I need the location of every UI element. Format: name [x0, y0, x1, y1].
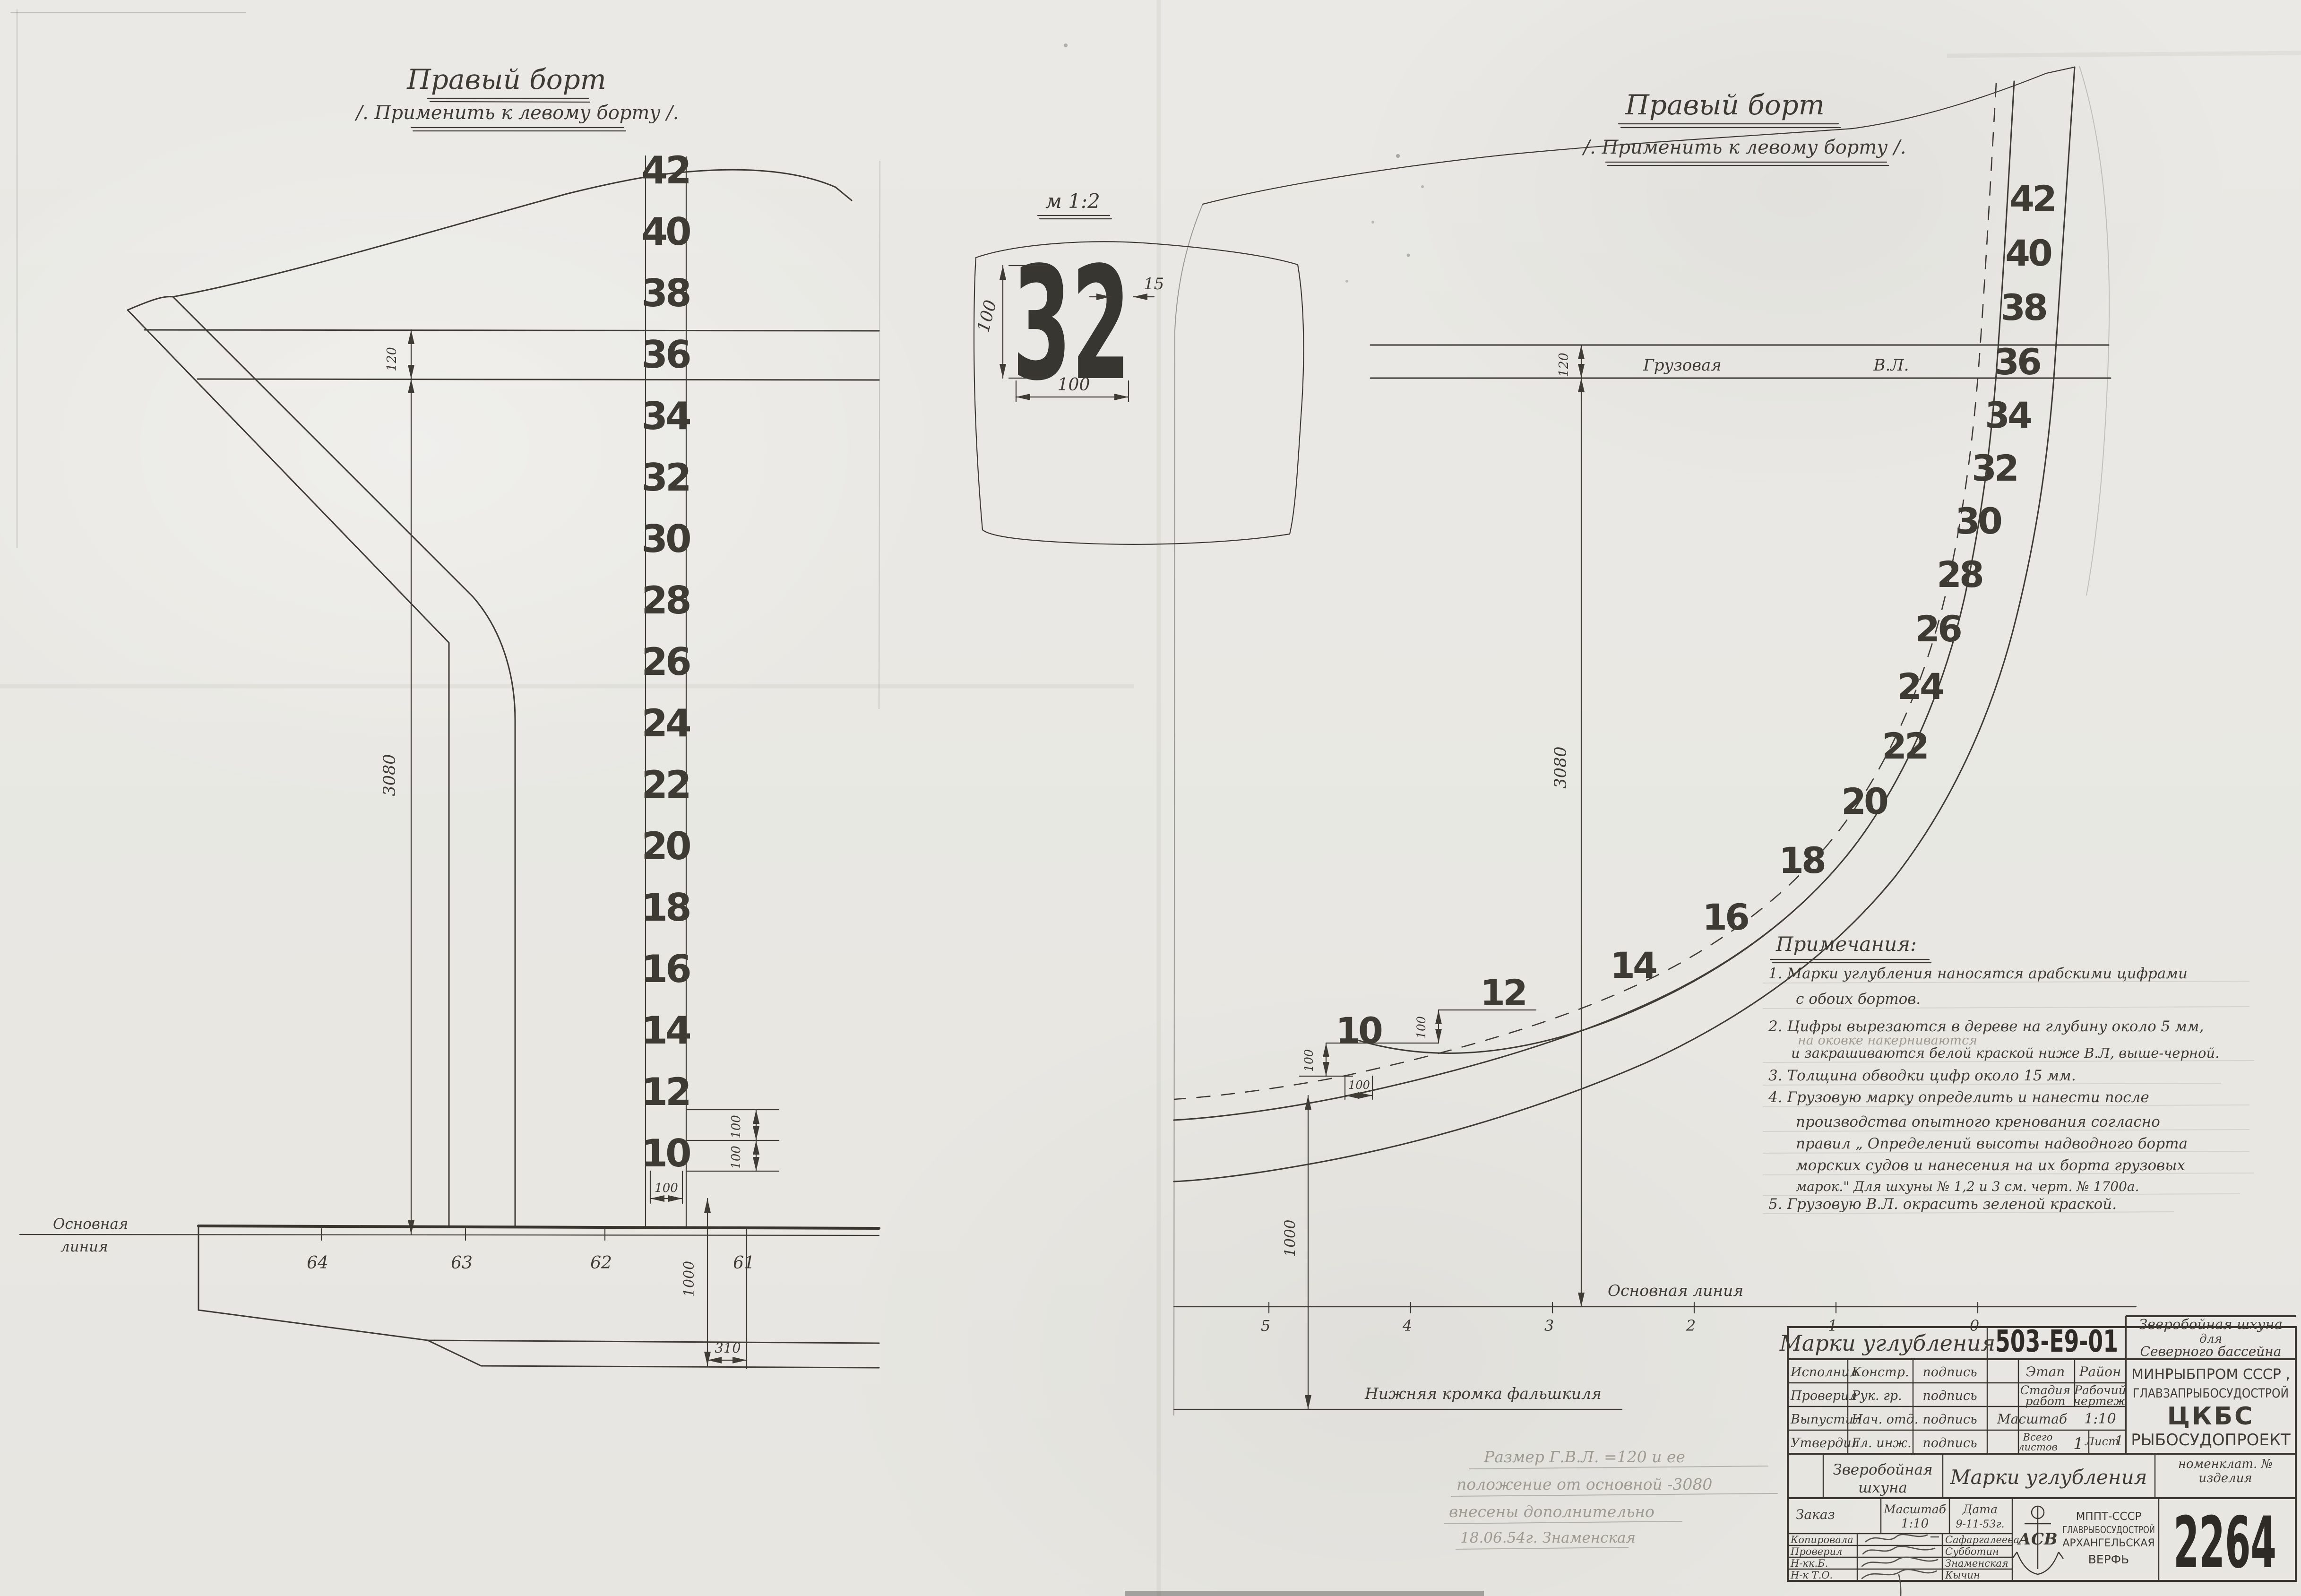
stamp-row4-role: Гл. инж.: [1851, 1436, 1912, 1450]
left-station-64: 64: [307, 1253, 328, 1273]
stamp-date-label: Дата: [1962, 1502, 1998, 1516]
stamp-sig1-name: Сафаргалеева: [1945, 1534, 2019, 1545]
right-mark-38: 38: [2000, 286, 2046, 328]
right-dim-1000: 1000: [1282, 1220, 1299, 1257]
stamp-sig3-name: Знаменская: [1945, 1558, 2008, 1569]
right-baseline-label: Основная линия: [1608, 1281, 1743, 1300]
stamp-sheet-value: 1: [2115, 1433, 2123, 1449]
left-dim-100a: 100: [729, 1115, 743, 1139]
stamp-row4-sig: подпись: [1922, 1436, 1977, 1450]
right-station-3: 3: [1544, 1317, 1554, 1335]
left-mark-26: 26: [641, 640, 690, 684]
stamp-registry-number: 2264: [2173, 1502, 2276, 1584]
pencil-note-line2: положение от основной -3080: [1456, 1475, 1712, 1493]
shipyard-anchor-logo: АСВ: [2012, 1506, 2063, 1574]
left-station-63: 63: [451, 1253, 473, 1273]
right-mark-36: 36: [1994, 341, 2040, 383]
right-load-wl-word2: В.Л.: [1873, 356, 1909, 375]
right-station-5: 5: [1261, 1317, 1270, 1335]
left-station-61: 61: [733, 1253, 755, 1273]
left-view: Правый борт /. Применить к левому борту …: [20, 63, 880, 1369]
mark-detail: м 1:2 32 100 100 15: [974, 190, 1303, 544]
note-1a: 1. Марки углубления наносятся арабскими …: [1768, 965, 2188, 982]
stamp-scale2-label: Масштаб: [1883, 1502, 1947, 1516]
right-title: Правый борт: [1625, 89, 1825, 121]
stamp-row1-label: Исполнил: [1790, 1365, 1858, 1380]
left-mark-10: 10: [641, 1131, 690, 1175]
stamp-doc-title: Марки углубления: [1779, 1330, 1996, 1356]
stamp-row2-label: Проверил: [1790, 1389, 1857, 1403]
right-paper-top-edge: [1203, 67, 2075, 204]
right-dim-100a: 100: [1414, 1016, 1428, 1039]
paper-artefacts: [0, 0, 2301, 1596]
right-mark-16: 16: [1702, 896, 1748, 938]
left-dim-100w: 100: [655, 1181, 678, 1195]
note-2b: и закрашиваются белой краской ниже В.Л, …: [1791, 1045, 2219, 1061]
stamp-row3-label: Выпустил: [1790, 1412, 1861, 1427]
stamp-sig3-label: Н-кк.Б.: [1790, 1558, 1828, 1569]
right-mark-26: 26: [1915, 608, 1961, 650]
stamp-row1-sig: подпись: [1922, 1365, 1977, 1380]
left-false-keel-line: [428, 1340, 879, 1368]
left-keel-outline: [198, 1226, 879, 1343]
left-mark-16: 16: [641, 947, 690, 991]
left-mark-28: 28: [641, 578, 689, 622]
note-1b: с обоих бортов.: [1796, 991, 1921, 1008]
stamp-org-line3: ЦКБС: [2167, 1402, 2255, 1431]
detail-scale-underline: [1038, 216, 1112, 219]
right-mark-30: 30: [1955, 500, 2001, 542]
stamp-row3-sig: подпись: [1922, 1412, 1977, 1427]
stamp-row3-role: Нач. отд.: [1851, 1412, 1918, 1427]
left-stem-outer: [128, 310, 449, 1227]
left-stem-inner: [173, 297, 515, 1227]
left-sheer-line: [128, 170, 852, 310]
stamp-org-line4: РЫБОСУДОПРОЕКТ: [2131, 1431, 2291, 1449]
note-4d: морских судов и нанесения на их борта гр…: [1796, 1157, 2185, 1174]
left-dim-120: 120: [385, 347, 399, 371]
stamp-yard-line4: ВЕРФЬ: [2088, 1553, 2129, 1566]
right-dim-100w: 100: [1348, 1078, 1370, 1092]
stamp-worktype-line2: чертеж: [2073, 1394, 2127, 1408]
stamp-project-line3: Северного бассейна: [2140, 1344, 2282, 1359]
left-mark-30: 30: [641, 517, 690, 561]
left-subtitle-underline: [411, 128, 626, 131]
stamp-total-sheets-value: 1: [2073, 1434, 2084, 1453]
stamp-project-line1: Зверобойная шхуна: [2139, 1316, 2283, 1332]
left-station-62: 62: [590, 1253, 612, 1273]
stamp-sig1-label: Копировала: [1790, 1534, 1853, 1545]
stamp-subject: Марки углубления: [1950, 1466, 2147, 1489]
left-mark-42: 42: [641, 148, 689, 192]
right-mark-28: 28: [1937, 553, 1982, 595]
stamp-row4-label: Утвердил: [1791, 1436, 1860, 1450]
stamp-org-line2: ГЛАВЗАПРЫБОСУДОСТРОЙ: [2133, 1386, 2289, 1401]
note-3: 3. Толщина обводки цифр около 15 мм.: [1768, 1067, 2076, 1084]
left-dim-3080: 3080: [380, 754, 399, 796]
pencil-note-line1: Размер Г.В.Л. =120 и ее: [1483, 1448, 1685, 1466]
right-draft-numbers: 42 40 38 36 34 32 30 28 26 24 22 20 18 1…: [1336, 178, 2055, 1052]
note-4b: производства опытного кренования согласн…: [1796, 1113, 2160, 1130]
stamp-row2-sig: подпись: [1922, 1389, 1977, 1403]
stamp-yard-line3: АРХАНГЕЛЬСКАЯ: [2062, 1537, 2154, 1549]
note-4e: марок." Для шхуны № 1,2 и 3 см. черт. № …: [1796, 1179, 2139, 1194]
right-load-wl-word1: Грузовая: [1643, 356, 1722, 375]
stamp-row1-role: Констр.: [1851, 1365, 1909, 1380]
stamp-signature-scribbles: [1862, 1535, 1939, 1596]
stamp-scale-value: 1:10: [2084, 1411, 2116, 1427]
left-mark-36: 36: [641, 333, 690, 377]
stamp-order-label: Заказ: [1796, 1507, 1835, 1522]
left-baseline-word2: линия: [60, 1238, 108, 1255]
right-dim-120: 120: [1557, 353, 1571, 377]
notes-heading: Примечания:: [1775, 932, 1917, 956]
right-paper-right-edge: [2079, 66, 2109, 595]
stamp-sig4-name: Кычин: [1945, 1570, 1980, 1581]
left-lower-waterline: [198, 379, 879, 380]
left-baseline: [20, 1234, 879, 1235]
stamp-org-line1: МИНРЫБПРОМ СССР ,: [2131, 1366, 2290, 1383]
right-station-2: 2: [1686, 1317, 1696, 1335]
left-mark-14: 14: [641, 1009, 690, 1052]
left-mark-18: 18: [641, 886, 689, 930]
stamp-nomen-line2: изделия: [2198, 1471, 2252, 1485]
stamp-yard-line1: МППТ-СССР: [2076, 1510, 2142, 1523]
right-subtitle-underline: [1606, 162, 1888, 165]
left-mark-40: 40: [641, 210, 690, 254]
right-mark-40: 40: [2005, 232, 2051, 274]
title-block: Марки углубления 503-Е9-01 Зверобойная ш…: [1779, 1316, 2296, 1596]
stamp-sig2-label: Проверил: [1790, 1546, 1842, 1557]
note-4c: правил „ Определений высоты надводного б…: [1796, 1135, 2188, 1152]
detail-scale-label: м 1:2: [1045, 190, 1100, 213]
right-dim-3080: 3080: [1551, 746, 1570, 788]
left-mark-32: 32: [641, 456, 689, 500]
right-mark-32: 32: [1972, 447, 2017, 489]
left-mark-20: 20: [641, 824, 690, 868]
detail-dim-height: 100: [974, 298, 1000, 335]
drawing-sheet: Правый борт /. Применить к левому борту …: [0, 0, 2301, 1596]
right-mark-18: 18: [1779, 839, 1825, 881]
left-baseline-word1: Основная: [53, 1216, 128, 1233]
stamp-scale2-value: 1:10: [1901, 1517, 1929, 1531]
detail-dim-width: 100: [1058, 375, 1090, 395]
left-dim-310: 310: [715, 1340, 741, 1356]
right-mark-10: 10: [1336, 1009, 1382, 1052]
pencil-note-line3: внесены дополнительно: [1449, 1502, 1655, 1521]
detail-dim-stroke: 15: [1144, 275, 1164, 293]
left-mark-24: 24: [641, 701, 690, 745]
pencil-note: Размер Г.В.Л. =120 и ее положение от осн…: [1444, 1448, 1778, 1549]
right-mark-22: 22: [1882, 725, 1927, 767]
left-upper-waterline: [145, 330, 879, 331]
right-mark-34: 34: [1985, 394, 2031, 436]
left-dim-100b: 100: [729, 1146, 743, 1169]
left-mark-38: 38: [641, 271, 689, 315]
stamp-doc-number: 503-Е9-01: [1995, 1324, 2118, 1359]
right-mark-24: 24: [1897, 665, 1943, 707]
stamp-nomen-line1: номенклат. №: [2178, 1457, 2273, 1471]
note-2a: 2. Цифры вырезаются в дереве на глубину …: [1768, 1018, 2204, 1035]
left-mark-34: 34: [641, 394, 690, 438]
left-draft-numbers: 42 40 38 36 34 32 30 28 26 24 22 20 18 1…: [641, 148, 690, 1175]
notes-block: Примечания: 1. Марки углубления наносятс…: [1763, 932, 2254, 1214]
stamp-logo-letters: АСВ: [2017, 1530, 2058, 1549]
right-mark-12: 12: [1480, 972, 1525, 1014]
right-stations: 5 4 3 2 1 0: [1261, 1303, 1979, 1335]
left-subtitle: /. Применить к левому борту /.: [354, 102, 679, 124]
stamp-vessel-line2: шхуна: [1858, 1479, 1907, 1496]
note-4a: 4. Грузовую марку определить и нанести п…: [1768, 1089, 2149, 1106]
stamp-sig4-label: Н-к Т.О.: [1790, 1570, 1833, 1581]
left-mark-22: 22: [641, 763, 689, 807]
notes-heading-underline: [1770, 959, 1931, 963]
stamp-stage-line2: работ: [2025, 1394, 2066, 1408]
right-station-4: 4: [1402, 1317, 1412, 1335]
pencil-note-line4: 18.06.54г. Знаменская: [1460, 1529, 1636, 1546]
left-title-underline: [428, 98, 590, 102]
right-false-keel-label: Нижняя кромка фальшкиля: [1364, 1384, 1602, 1403]
left-dim-1000: 1000: [681, 1261, 698, 1297]
stamp-row2-role: Рук. гр.: [1851, 1389, 1902, 1403]
right-mark-20: 20: [1841, 780, 1887, 822]
right-dim-100b: 100: [1302, 1049, 1316, 1072]
left-hull-bottom-line: [198, 1226, 879, 1228]
stamp-total-sheets-line2: листов: [2018, 1441, 2057, 1453]
left-paper-edge: [879, 161, 880, 709]
stamp-scale-label: Масштаб: [1997, 1411, 2068, 1427]
right-paper-left-edge: [1174, 204, 1203, 1415]
stamp-sheet-label: Лист: [2085, 1435, 2119, 1448]
right-hull-inner-curve: [1174, 81, 2014, 1120]
drawing-canvas: Правый борт /. Применить к левому борту …: [0, 0, 2301, 1596]
stamp-etap-label: Этап: [2026, 1364, 2065, 1380]
right-mark-14: 14: [1610, 944, 1656, 986]
stamp-vessel-line1: Зверобойная: [1833, 1461, 1932, 1478]
left-mark-12: 12: [641, 1070, 689, 1114]
stamp-sig2-name: Субботин: [1945, 1546, 1999, 1557]
left-title: Правый борт: [406, 63, 606, 95]
right-subtitle: /. Применить к левому борту /.: [1582, 137, 1906, 158]
stamp-date-value: 9-11-53г.: [1956, 1518, 2005, 1530]
right-title-underline: [1619, 124, 1840, 128]
right-mark-42: 42: [2009, 178, 2055, 220]
note-5: 5. Грузовую В.Л. окрасить зеленой краско…: [1768, 1196, 2117, 1213]
stamp-yard-line2: ГЛАВРЫБОСУДОСТРОЙ: [2062, 1524, 2155, 1536]
stamp-raion-label: Район: [2079, 1364, 2121, 1380]
